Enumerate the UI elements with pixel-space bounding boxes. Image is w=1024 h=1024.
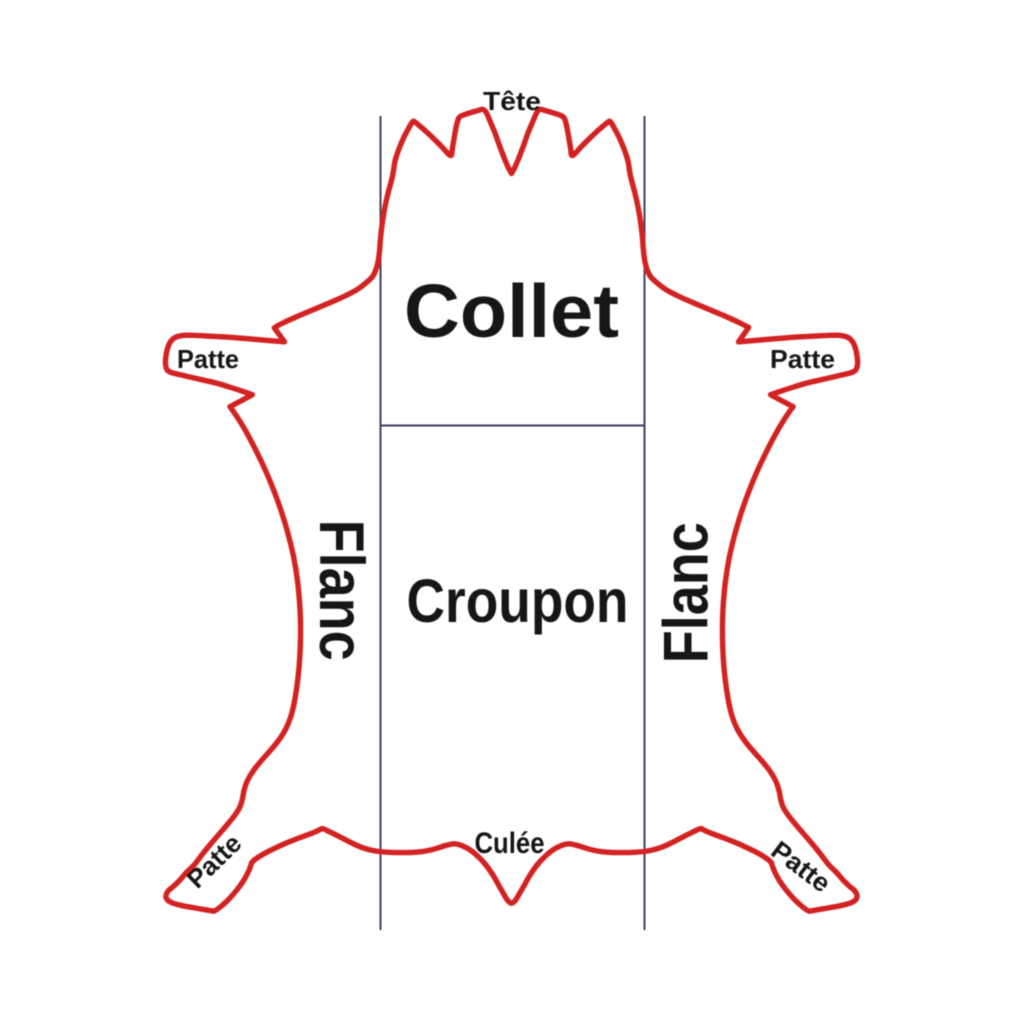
svg-text:Flanc: Flanc (306, 520, 376, 661)
svg-text:Collet: Collet (404, 269, 619, 353)
svg-text:Patte: Patte (177, 344, 239, 374)
svg-text:Croupon: Croupon (407, 567, 629, 635)
svg-text:Tête: Tête (483, 86, 541, 116)
svg-text:Flanc: Flanc (652, 522, 722, 663)
svg-text:Patte: Patte (770, 344, 835, 374)
svg-text:Culée: Culée (475, 827, 545, 860)
